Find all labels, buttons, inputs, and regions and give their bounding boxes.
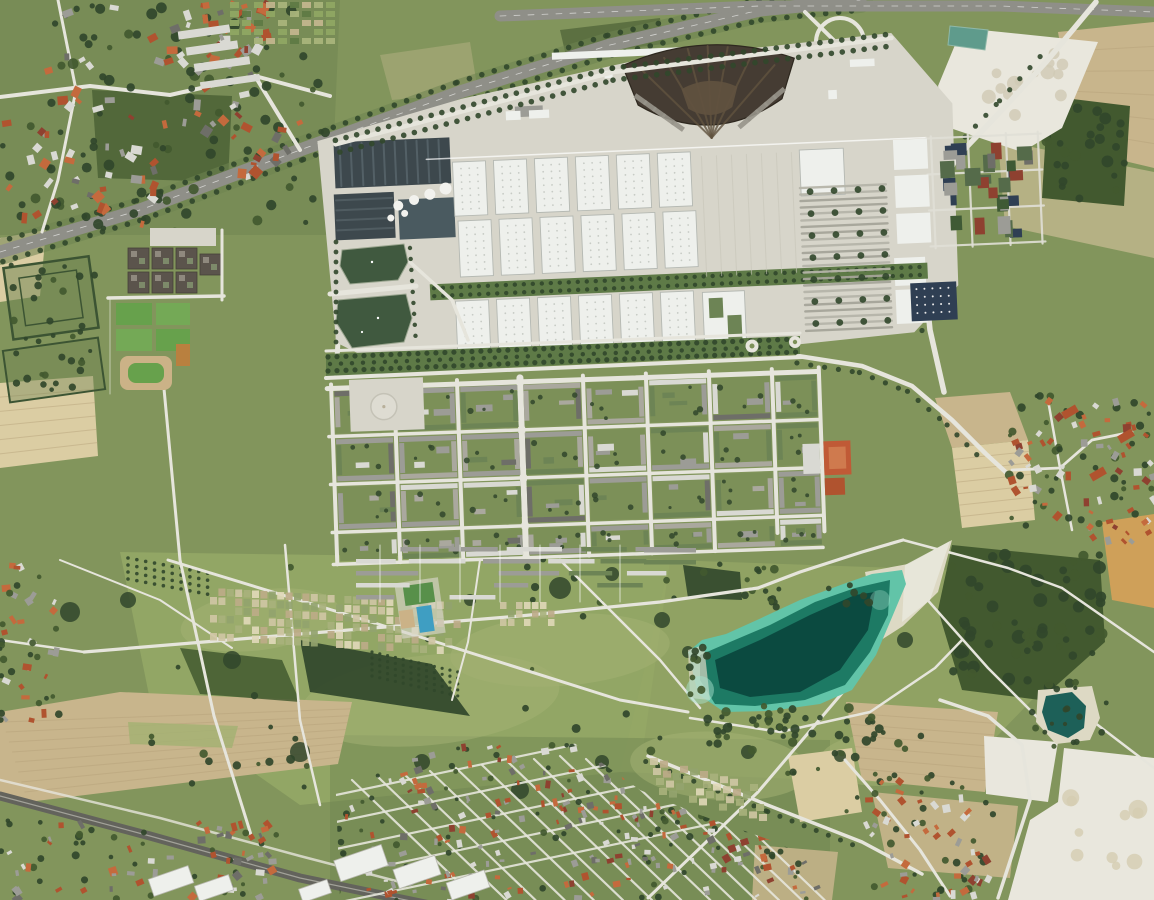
tree (62, 240, 68, 246)
tree (559, 68, 565, 74)
garden-plot (244, 617, 251, 625)
tree (1053, 161, 1061, 169)
tree (299, 52, 307, 60)
garden-plot (218, 616, 225, 624)
tree (1050, 722, 1054, 726)
garden-plot (395, 635, 402, 643)
commercial-building (940, 161, 955, 179)
court (176, 344, 190, 366)
tree (1045, 680, 1054, 689)
house (263, 878, 268, 884)
roof-terrace (211, 264, 217, 270)
tree (839, 750, 845, 756)
house (543, 771, 545, 775)
tree (388, 366, 393, 371)
tree (32, 228, 38, 234)
tree (1089, 650, 1095, 656)
building (399, 443, 405, 473)
tree (959, 661, 969, 671)
building (555, 538, 567, 543)
allotment-plot (656, 778, 664, 785)
tree (748, 746, 757, 755)
tree (559, 359, 564, 364)
tree (59, 287, 67, 295)
allotment-plot (230, 2, 239, 8)
garden-plot (311, 639, 318, 647)
house (412, 889, 417, 893)
tree (777, 814, 782, 819)
tree (887, 776, 893, 782)
tree (19, 201, 26, 208)
tree (1016, 472, 1024, 480)
tree (577, 345, 582, 350)
tree (397, 365, 402, 370)
courtyard (339, 533, 397, 561)
allotment-plot (290, 2, 299, 8)
roof-terrace (179, 251, 185, 257)
tree (777, 724, 783, 730)
allotment-plot (302, 20, 311, 26)
tree (427, 358, 431, 362)
tree (1121, 480, 1126, 485)
tree (988, 552, 998, 562)
tree (1027, 65, 1032, 70)
house (1105, 418, 1110, 422)
tree (844, 809, 848, 813)
tree (107, 45, 112, 50)
roof-terrace (131, 251, 137, 257)
tree (334, 310, 339, 315)
tree (770, 565, 779, 574)
garden-plot (361, 615, 368, 623)
tree (758, 17, 764, 23)
tree (1078, 516, 1085, 523)
tree (675, 820, 680, 825)
tree (770, 854, 776, 860)
tree (493, 752, 499, 758)
commercial-building (964, 168, 981, 186)
tree (406, 365, 411, 370)
tree (676, 354, 681, 359)
tree (79, 323, 86, 330)
allotment-plot (749, 811, 757, 818)
tree (124, 30, 133, 39)
tree (974, 452, 979, 457)
tree (112, 225, 118, 231)
tree (408, 246, 412, 250)
tree (954, 432, 959, 437)
tree (433, 683, 436, 686)
tree (505, 348, 510, 353)
tree (393, 841, 400, 848)
tree (687, 691, 693, 697)
tree (523, 360, 528, 365)
tree (1048, 488, 1054, 494)
row-house (483, 559, 540, 564)
tree (313, 79, 322, 88)
tree (57, 62, 65, 70)
tree (162, 577, 166, 581)
building (391, 539, 396, 553)
tree (673, 37, 679, 43)
house (644, 850, 651, 855)
tree (487, 348, 492, 353)
tree (411, 301, 415, 305)
house (951, 890, 956, 899)
tree (778, 344, 782, 348)
tree (424, 351, 429, 356)
tree (959, 647, 969, 657)
building (642, 483, 648, 513)
tree (739, 352, 744, 357)
tree (34, 654, 40, 660)
building (460, 393, 466, 423)
school-building (802, 443, 820, 474)
tree (971, 838, 977, 844)
tree (765, 710, 773, 718)
tree (604, 344, 609, 349)
tree (153, 568, 157, 572)
garden-plot (378, 607, 385, 615)
building (777, 430, 783, 460)
tree (1136, 422, 1144, 430)
tree (79, 33, 87, 41)
tree (522, 705, 529, 712)
garden-plot (412, 645, 419, 653)
tree (214, 189, 220, 195)
allotment-plot (710, 774, 718, 781)
tree (370, 656, 373, 659)
row-house (356, 595, 394, 600)
tree (448, 687, 451, 690)
tree (712, 353, 717, 358)
tree (776, 587, 781, 592)
garden-plot (302, 594, 309, 602)
tree (334, 340, 339, 345)
garden-plot (540, 602, 547, 609)
tree (268, 148, 274, 154)
tree (53, 380, 59, 386)
commercial-building (974, 217, 985, 234)
tree (1017, 76, 1022, 81)
tree (460, 357, 464, 361)
garden-plot (227, 634, 234, 642)
tree (394, 662, 397, 665)
house (954, 873, 961, 878)
tree (685, 354, 690, 359)
tree (133, 30, 141, 38)
tree (0, 656, 7, 663)
garden-plot (319, 595, 326, 603)
commercial-building (1009, 170, 1023, 181)
house (517, 888, 523, 894)
tree (734, 346, 738, 350)
house (388, 862, 395, 867)
tree (350, 361, 354, 365)
tree (456, 688, 459, 691)
tree (91, 34, 98, 41)
tree (712, 340, 717, 345)
tree (761, 566, 766, 571)
allotment-plot (254, 38, 263, 44)
tree (1027, 640, 1034, 647)
garden-plot (260, 591, 267, 599)
garden-plot (235, 608, 242, 616)
tree (441, 691, 444, 694)
tree (1076, 713, 1082, 719)
tree (836, 367, 841, 372)
tree (433, 364, 438, 369)
tree (730, 339, 735, 344)
tree (163, 196, 171, 204)
tree (580, 613, 587, 620)
house (626, 878, 631, 880)
tree (1121, 160, 1128, 167)
tree (162, 584, 166, 588)
tree (893, 826, 899, 832)
tree (134, 198, 140, 204)
tree (658, 355, 663, 360)
tree (1117, 119, 1125, 127)
allotment-plot (314, 11, 323, 17)
building (597, 444, 614, 451)
tree (449, 763, 455, 769)
gravel-pile (1127, 854, 1143, 870)
building (714, 432, 720, 462)
garden-plot (336, 632, 343, 640)
tree (179, 587, 183, 591)
house (900, 872, 908, 877)
garden-plot (548, 611, 555, 618)
tree (694, 353, 699, 358)
tree (303, 220, 308, 225)
tree (405, 359, 409, 363)
tree (386, 678, 389, 681)
house (569, 880, 575, 887)
house (226, 857, 231, 863)
tree (765, 720, 771, 726)
tree (832, 750, 838, 756)
tree (38, 820, 43, 825)
tree (334, 368, 339, 373)
allotment-plot (750, 784, 758, 791)
tree (1063, 636, 1070, 643)
gravel-pile (1062, 789, 1079, 806)
tree (864, 599, 869, 604)
house (667, 863, 673, 869)
allotment-plot (680, 766, 688, 773)
tree (76, 272, 84, 280)
allotment-plot (230, 29, 239, 35)
tree (417, 667, 420, 670)
tree (850, 369, 855, 374)
tree (58, 354, 65, 361)
tree (34, 282, 42, 290)
service-building (850, 59, 875, 67)
garden-plot (294, 629, 301, 637)
tree (78, 359, 85, 366)
tree (72, 851, 80, 859)
building (528, 534, 533, 548)
tree (660, 40, 666, 46)
tree (578, 41, 584, 47)
allotment-plot (230, 11, 239, 17)
tree (309, 195, 317, 203)
tree (299, 101, 304, 106)
tree (13, 379, 20, 386)
tree (1060, 147, 1070, 157)
tree (564, 743, 569, 748)
tree (766, 338, 771, 343)
tree (541, 346, 546, 351)
tree (441, 685, 444, 688)
house (131, 175, 143, 184)
tree (681, 870, 686, 875)
tree (415, 365, 420, 370)
tree (162, 563, 166, 567)
house (193, 99, 201, 111)
tree (273, 832, 279, 838)
tree (531, 583, 539, 591)
tree (966, 576, 977, 587)
tree (361, 367, 366, 372)
tree (793, 349, 798, 354)
tree (717, 562, 722, 567)
garden-plot (353, 606, 360, 614)
tree (1119, 496, 1123, 500)
roof-terrace (163, 282, 169, 288)
tree (41, 837, 47, 843)
garden-plot (361, 624, 368, 632)
service-building (828, 90, 837, 99)
tree (961, 621, 970, 630)
allotment-plot (666, 781, 674, 788)
gravel-pile (1120, 810, 1131, 821)
tree (170, 579, 174, 583)
building (811, 381, 817, 411)
tree (1007, 87, 1012, 92)
tree (446, 835, 451, 840)
row-house (409, 559, 466, 564)
garden-plot (500, 619, 507, 626)
tree (334, 300, 339, 305)
tree (325, 368, 330, 373)
building (334, 397, 340, 427)
garden-plot (210, 633, 217, 641)
tree (260, 115, 270, 125)
garden-plot (286, 593, 293, 601)
commercial-building (944, 182, 958, 195)
tree (425, 681, 428, 684)
building (401, 491, 407, 521)
tree (1038, 54, 1043, 59)
house (21, 212, 27, 223)
allotment-plot (254, 20, 263, 26)
garden-plot (540, 611, 547, 618)
allotment-plot (676, 783, 684, 790)
garden-plot (286, 611, 293, 619)
tree (334, 260, 339, 265)
tree (392, 102, 398, 108)
building (436, 446, 449, 453)
tree (749, 19, 755, 25)
tree (870, 375, 875, 380)
tree (409, 677, 412, 680)
tree (784, 15, 790, 21)
tree (1063, 722, 1067, 726)
tree (13, 350, 19, 356)
tree (835, 731, 844, 740)
house (412, 758, 418, 762)
tree (334, 240, 339, 245)
tree (766, 351, 771, 356)
tree (95, 4, 105, 14)
commercial-building (997, 199, 1009, 209)
commercial-building (988, 187, 998, 198)
tree (523, 347, 528, 352)
tree (1110, 492, 1118, 500)
garden-plot (269, 637, 276, 645)
tree (144, 560, 148, 564)
tree (37, 248, 43, 254)
tree (52, 20, 58, 26)
tree (119, 202, 125, 208)
tree (330, 125, 336, 131)
tree (256, 762, 260, 766)
house (1029, 484, 1037, 492)
tree (937, 416, 942, 421)
tree (826, 833, 831, 838)
garden-plot (532, 602, 539, 609)
allotment-plot (733, 789, 741, 796)
tree (990, 811, 996, 817)
tree (233, 761, 241, 769)
tree (265, 758, 273, 766)
roof-terrace (187, 258, 193, 264)
garden-plot (353, 615, 360, 623)
tree (516, 60, 522, 66)
house (345, 814, 349, 820)
tree (451, 363, 456, 368)
building (414, 462, 425, 468)
tree (304, 763, 310, 769)
tree (370, 367, 375, 372)
tree (334, 330, 339, 335)
tree (334, 280, 339, 285)
house (1134, 468, 1142, 476)
tree (699, 644, 707, 652)
garden-plot (277, 592, 284, 600)
tree (279, 72, 284, 77)
track-infield (128, 363, 164, 383)
tree (53, 626, 59, 632)
building (512, 391, 518, 421)
tree (137, 188, 147, 198)
building (669, 484, 679, 490)
house (595, 859, 599, 863)
tree (446, 850, 452, 856)
tree (36, 700, 42, 706)
house (959, 794, 964, 802)
tree (74, 841, 79, 846)
tree (595, 344, 600, 349)
gravel-pile (982, 90, 996, 104)
house (148, 858, 155, 864)
garden-plot (328, 595, 335, 603)
tree (292, 736, 298, 742)
garden-plot (319, 604, 326, 612)
tree (648, 832, 653, 837)
